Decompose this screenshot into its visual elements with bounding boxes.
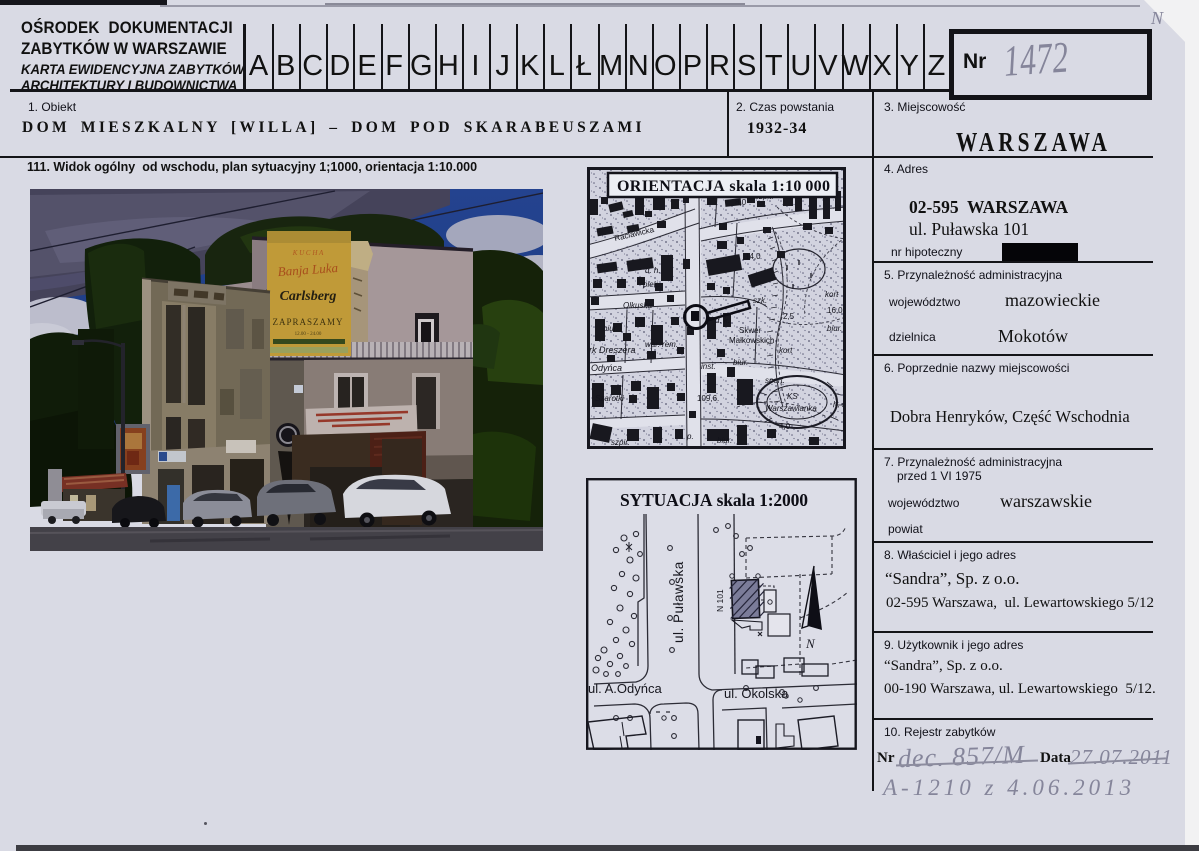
svg-text:war. rem.: war. rem. [645, 340, 678, 349]
svg-text:d. h.: d. h. [645, 266, 661, 275]
svg-text:N: N [805, 636, 816, 651]
svg-text:12.00 - 24.00: 12.00 - 24.00 [295, 332, 322, 337]
svg-text:biur.: biur. [603, 324, 618, 333]
svg-text:biur.: biur. [717, 436, 732, 445]
svg-text:piek.: piek. [642, 280, 660, 289]
svg-text:d. k.: d. k. [715, 316, 730, 325]
svg-text:SYTUACJA skala 1:2000: SYTUACJA skala 1:2000 [620, 490, 808, 510]
svg-text:Szarotki: Szarotki [595, 394, 624, 403]
svg-text:Skwer: Skwer [739, 326, 762, 335]
svg-text:4,0: 4,0 [779, 422, 791, 431]
svg-text:szpir.: szpir. [611, 438, 630, 447]
svg-text:rk Dreszera: rk Dreszera [589, 345, 636, 355]
svg-text:109,6.: 109,6. [697, 394, 719, 403]
svg-text:kort: kort [779, 346, 793, 355]
svg-text:14,0: 14,0 [745, 252, 761, 261]
svg-text:ZAPRASZAMY: ZAPRASZAMY [272, 317, 343, 327]
svg-text:KS: KS [787, 392, 798, 401]
svg-text:N 101: N 101 [715, 589, 725, 612]
svg-text:16,0: 16,0 [827, 306, 843, 315]
svg-text:Carlsberg: Carlsberg [280, 289, 337, 304]
svg-text:p.: p. [686, 432, 694, 441]
svg-text:inst.: inst. [701, 362, 716, 371]
svg-text:kort: kort [825, 290, 839, 299]
svg-text:szk.: szk. [753, 296, 767, 305]
svg-text:ul. Puławska: ul. Puławska [671, 561, 686, 643]
svg-text:ul. A.Odyńca: ul. A.Odyńca [588, 681, 662, 696]
svg-text:biur.: biur. [733, 358, 748, 367]
svg-text:sport.: sport. [765, 376, 785, 385]
svg-text:Małkowskich: Małkowskich [729, 336, 774, 345]
svg-text:2,5: 2,5 [783, 312, 795, 321]
svg-text:biur.: biur. [827, 324, 842, 333]
svg-text:ORIENTACJA skala 1:10 000: ORIENTACJA skala 1:10 000 [617, 178, 830, 195]
svg-text:Olkuska: Olkuska [623, 301, 652, 310]
svg-text:Odyńca: Odyńca [591, 363, 622, 373]
svg-text:Warszawianka: Warszawianka [765, 404, 817, 413]
svg-text:8,0: 8,0 [735, 198, 747, 207]
svg-text:K U C H A: K U C H A [292, 249, 324, 257]
svg-text:ul. Okolska: ul. Okolska [724, 686, 789, 701]
